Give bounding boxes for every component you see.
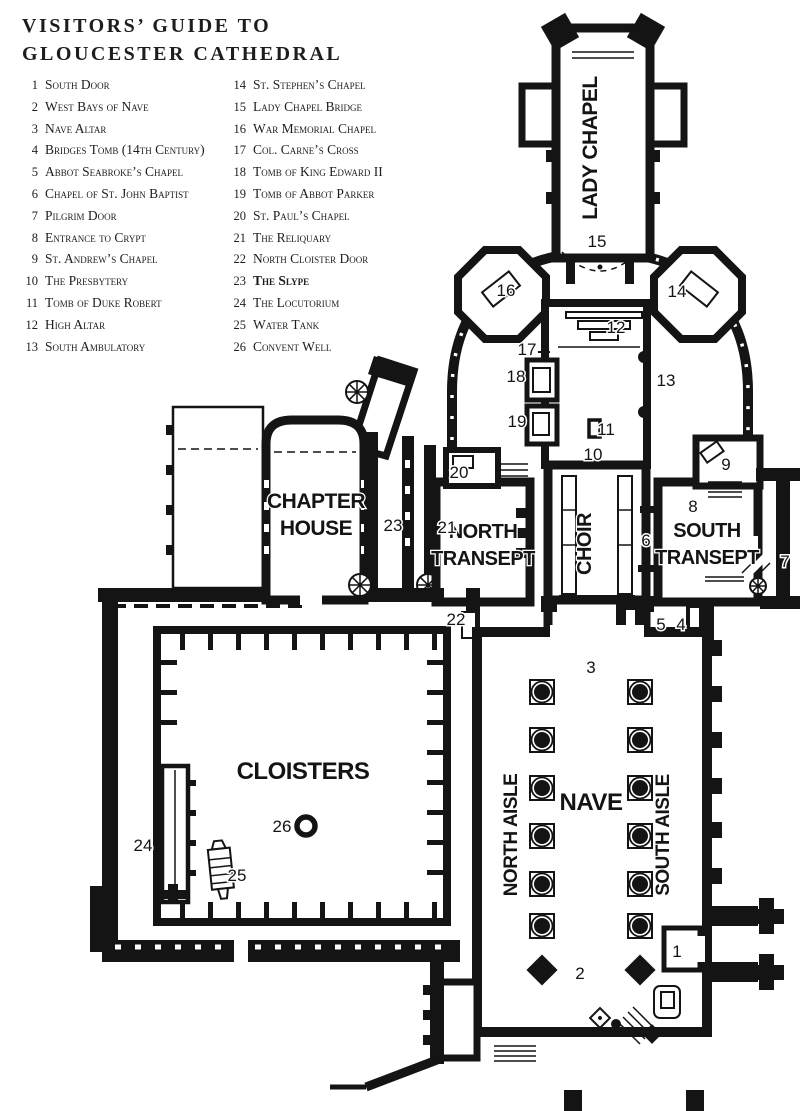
- plan-number-23: 23: [384, 516, 403, 535]
- font: [654, 986, 680, 1018]
- plan-number-14: 14: [668, 282, 687, 301]
- plan-number-5: 5: [656, 615, 665, 634]
- room-label-north-transept: NORTH: [449, 521, 518, 543]
- plan-number-7: 7: [780, 552, 789, 571]
- room-label-lady-chapel: LADY CHAPEL: [579, 76, 602, 220]
- plan-number-4: 4: [676, 615, 685, 634]
- plan-number-2: 2: [575, 964, 584, 983]
- room-label-north-transept: TRANSEPT: [431, 548, 535, 570]
- spiral-stair: [750, 578, 766, 594]
- plan-number-24: 24: [134, 836, 153, 855]
- plan-number-3: 3: [586, 658, 595, 677]
- presbytery-room: [527, 303, 650, 465]
- room-label-south-transept: TRANSEPT: [655, 547, 759, 569]
- visitor-guide-page: VISITORS’ GUIDE TO GLOUCESTER CATHEDRAL …: [0, 0, 800, 1111]
- room-label-chapter-house: CHAPTER: [267, 490, 365, 513]
- plan-number-25: 25: [228, 866, 247, 885]
- plan-number-22: 22: [447, 610, 466, 629]
- plan-number-16: 16: [497, 281, 516, 300]
- plan-number-13: 13: [657, 371, 676, 390]
- floor-plan: LADY CHAPELCHAPTERHOUSENORTHTRANSEPTCHOI…: [0, 0, 800, 1111]
- plan-number-15: 15: [588, 232, 607, 251]
- south-door-1: [664, 928, 705, 970]
- tomb-edward-ii-18: [527, 360, 557, 400]
- spiral-stair: [349, 574, 371, 596]
- plan-number-1: 1: [672, 942, 681, 961]
- plan-number-26: 26: [273, 817, 292, 836]
- tomb-abbot-parker-19: [527, 406, 557, 444]
- plan-number-9: 9: [721, 455, 730, 474]
- plan-number-17: 17: [518, 340, 537, 359]
- plan-number-19: 19: [508, 412, 527, 431]
- plan-number-18: 18: [507, 367, 526, 386]
- room-label-nave: NAVE: [560, 789, 623, 816]
- plan-number-6: 6: [641, 531, 650, 550]
- south-porch: [702, 898, 784, 990]
- room-label-chapter-house: HOUSE: [280, 517, 353, 540]
- room-label-choir: CHOIR: [574, 512, 596, 575]
- plan-number-20: 20: [450, 463, 469, 482]
- room-label-north-aisle: NORTH AISLE: [501, 774, 522, 897]
- room-label-south-transept: SOUTH: [673, 520, 741, 542]
- spiral-stair: [346, 381, 368, 403]
- plan-number-10: 10: [584, 445, 603, 464]
- convent-well-26: [297, 817, 315, 835]
- plan-number-8: 8: [688, 497, 697, 516]
- plan-number-12: 12: [607, 318, 626, 337]
- room-label-south-aisle: SOUTH AISLE: [653, 774, 674, 896]
- plan-number-11: 11: [597, 420, 615, 439]
- plan-number-21: 21: [438, 518, 457, 537]
- room-label-cloisters: CLOISTERS: [237, 758, 370, 785]
